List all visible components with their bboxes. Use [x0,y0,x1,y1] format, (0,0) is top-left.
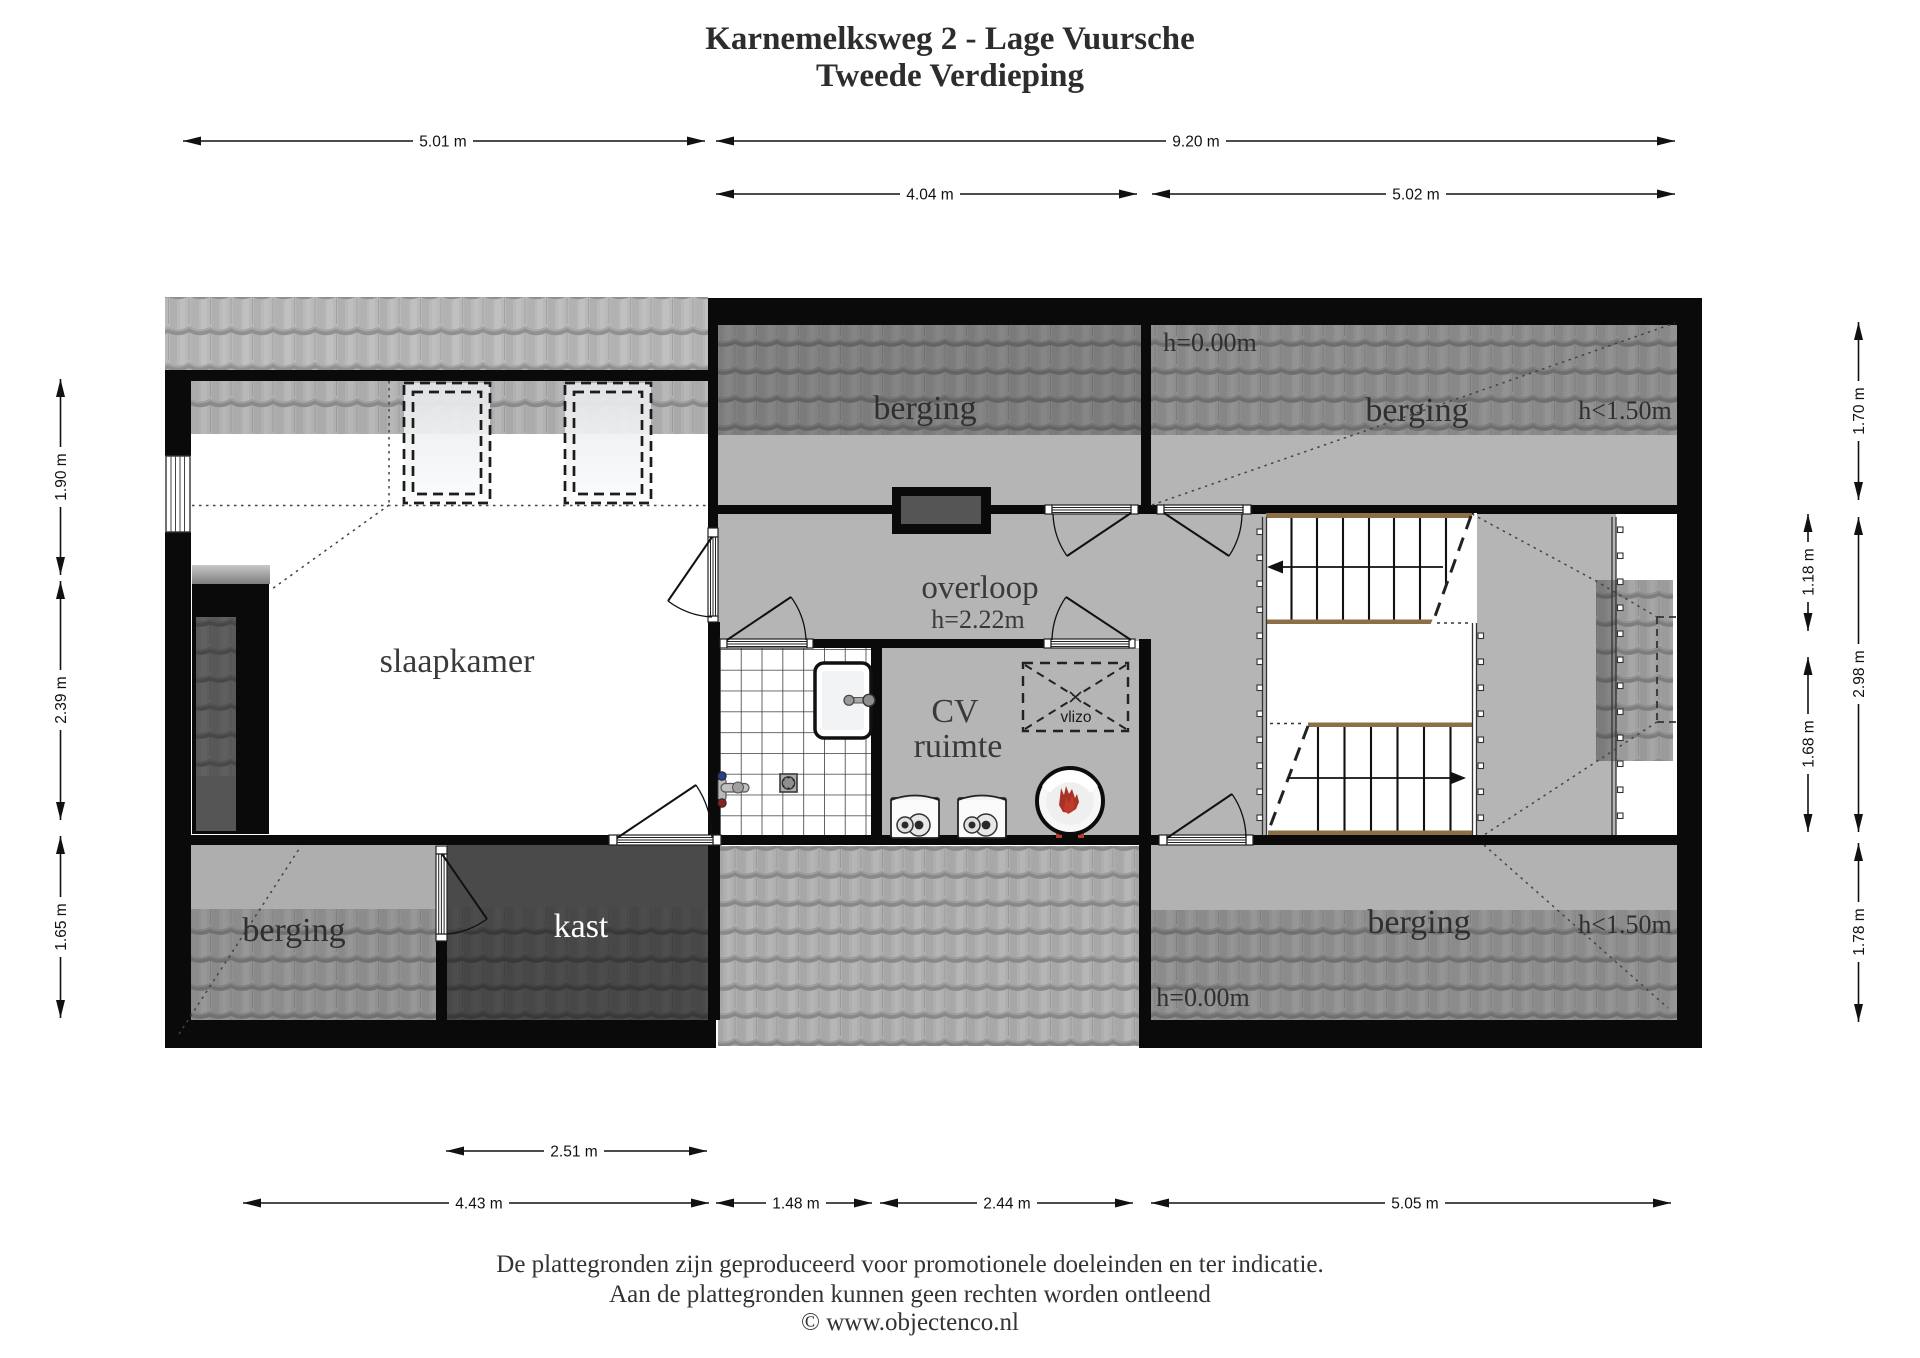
svg-text:berging: berging [242,912,345,949]
svg-text:Karnemelksweg 2 - Lage Vuursch: Karnemelksweg 2 - Lage Vuursche [705,21,1195,57]
svg-text:5.01 m: 5.01 m [419,134,466,151]
svg-text:2.98 m: 2.98 m [1851,650,1868,697]
svg-text:9.20 m: 9.20 m [1172,134,1219,151]
svg-text:berging: berging [1367,904,1470,941]
svg-text:1.90 m: 1.90 m [53,453,70,500]
svg-text:kast: kast [554,908,609,945]
svg-text:1.65 m: 1.65 m [53,903,70,950]
svg-text:h<1.50m: h<1.50m [1578,910,1671,939]
svg-text:1.68 m: 1.68 m [1801,720,1818,767]
svg-text:vlizo: vlizo [1060,709,1091,726]
svg-text:ruimte: ruimte [914,728,1003,765]
svg-text:h=2.22m: h=2.22m [931,605,1024,634]
svg-text:4.43 m: 4.43 m [455,1196,502,1213]
svg-text:4.04 m: 4.04 m [906,187,953,204]
svg-text:1.48 m: 1.48 m [772,1196,819,1213]
svg-text:CV: CV [931,693,979,730]
svg-text:h=0.00m: h=0.00m [1163,328,1256,357]
svg-text:2.51 m: 2.51 m [550,1144,597,1161]
svg-text:h<1.50m: h<1.50m [1578,396,1671,425]
svg-text:1.18 m: 1.18 m [1801,548,1818,595]
svg-text:Aan de plattegronden kunnen ge: Aan de plattegronden kunnen geen rechten… [609,1281,1211,1308]
svg-text:2.44 m: 2.44 m [983,1196,1030,1213]
svg-text:De plattegronden zijn geproduc: De plattegronden zijn geproduceerd voor … [496,1251,1323,1278]
svg-text:1.78 m: 1.78 m [1851,908,1868,955]
svg-text:2.39 m: 2.39 m [53,676,70,723]
svg-text:5.05 m: 5.05 m [1391,1196,1438,1213]
svg-text:Tweede Verdieping: Tweede Verdieping [816,58,1084,94]
svg-text:1.70 m: 1.70 m [1851,387,1868,434]
svg-text:h=0.00m: h=0.00m [1156,983,1249,1012]
svg-text:© www.objectenco.nl: © www.objectenco.nl [801,1309,1019,1336]
svg-text:5.02 m: 5.02 m [1392,187,1439,204]
svg-text:overloop: overloop [921,570,1038,606]
svg-text:slaapkamer: slaapkamer [380,643,535,680]
svg-text:berging: berging [1365,392,1468,429]
svg-text:berging: berging [873,390,976,427]
